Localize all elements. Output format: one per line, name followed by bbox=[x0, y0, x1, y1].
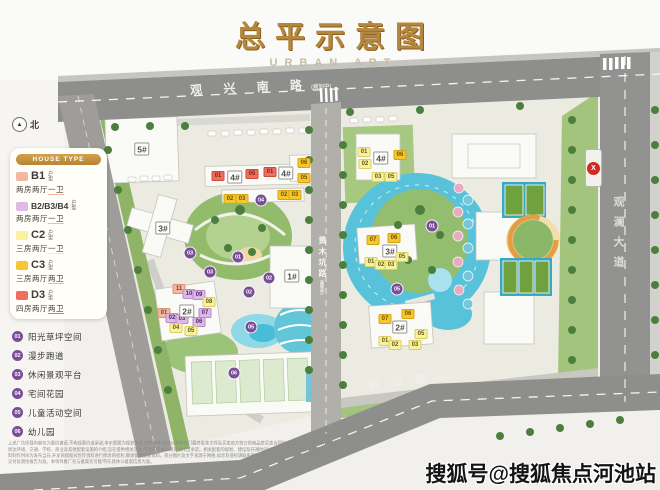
legend-item-B1: B1户型两房两厅一卫 bbox=[16, 171, 101, 195]
road-name-right: 观澜大道 bbox=[612, 196, 624, 276]
amenity-list: 01阳光草坪空间02漫步跑道03休闲景观平台04宅间花园05儿童活动空间06幼儿… bbox=[12, 331, 82, 445]
page-title: 总平示意图 bbox=[0, 12, 660, 56]
legend-code: C3 bbox=[31, 260, 45, 271]
legend-item-C2: C2户型三房两厅一卫 bbox=[16, 230, 101, 254]
legend-swatch bbox=[16, 261, 28, 270]
page-subtitle: URBAN ART bbox=[0, 57, 660, 69]
legend-suffix: 户型 bbox=[48, 231, 54, 241]
legend-items: B1户型两房两厅一卫B2/B3/B4户型两房两厅一卫C2户型三房两厅一卫C3户型… bbox=[16, 171, 101, 314]
amenity-label: 漫步跑道 bbox=[28, 350, 64, 362]
legend-header: HOUSE TYPE bbox=[16, 154, 101, 165]
north-label: 北 bbox=[30, 118, 39, 131]
amenity-number-badge: 03 bbox=[12, 369, 23, 380]
amenity-item-01: 01阳光草坪空间 bbox=[12, 331, 82, 342]
amenity-label: 宅间花园 bbox=[28, 388, 64, 400]
amenity-label: 阳光草坪空间 bbox=[28, 331, 82, 343]
road-note-middle: (规划中) bbox=[320, 280, 325, 295]
legend-swatch bbox=[16, 231, 28, 240]
north-arrow-icon: ▲ bbox=[12, 117, 27, 132]
station-icon: X bbox=[587, 162, 600, 175]
amenity-number-badge: 06 bbox=[12, 426, 23, 437]
amenity-number-badge: 04 bbox=[12, 388, 23, 399]
amenity-item-03: 03休闲景观平台 bbox=[12, 369, 82, 380]
amenity-item-06: 06幼儿园 bbox=[12, 426, 82, 437]
legend-desc: 三房两厅两卫 bbox=[16, 273, 101, 284]
legend-code: B2/B3/B4 bbox=[31, 202, 68, 211]
amenity-number-badge: 01 bbox=[12, 331, 23, 342]
transit-station-badge: X bbox=[585, 149, 602, 187]
amenity-label: 幼儿园 bbox=[28, 426, 55, 438]
amenity-item-04: 04宅间花园 bbox=[12, 388, 82, 399]
amenity-number-badge: 02 bbox=[12, 350, 23, 361]
legend-suffix: 户型 bbox=[48, 172, 54, 182]
road-label-middle: 黄木坑路(规划中) bbox=[317, 236, 328, 295]
legend-suffix: 户型 bbox=[48, 261, 54, 271]
title-block: 总平示意图 URBAN ART bbox=[0, 12, 660, 69]
site-plan-page: 总平示意图 URBAN ART ▲ 北 观 兴 南 路(规划中) 观澜大道 黄木… bbox=[0, 0, 660, 490]
amenity-item-05: 05儿童活动空间 bbox=[12, 407, 82, 418]
legend-item-C3: C3户型三房两厅两卫 bbox=[16, 260, 101, 284]
legend-desc: 四房两厅两卫 bbox=[16, 303, 101, 314]
legend-desc: 三房两厅一卫 bbox=[16, 243, 101, 254]
amenity-label: 休闲景观平台 bbox=[28, 369, 82, 381]
road-note-top: (规划中) bbox=[311, 84, 331, 91]
legend-item-B2-B3-B4: B2/B3/B4户型两房两厅一卫 bbox=[16, 201, 101, 224]
house-type-legend: HOUSE TYPE B1户型两房两厅一卫B2/B3/B4户型两房两厅一卫C2户… bbox=[10, 148, 107, 319]
legend-code: D3 bbox=[31, 290, 45, 301]
north-indicator: ▲ 北 bbox=[12, 117, 39, 132]
legend-code: B1 bbox=[31, 171, 45, 182]
legend-desc: 两房两厅一卫 bbox=[16, 184, 101, 195]
legend-code: C2 bbox=[31, 230, 45, 241]
legend-suffix: 户型 bbox=[48, 291, 54, 301]
road-label-right: 观澜大道 bbox=[610, 196, 626, 276]
amenity-number-badge: 05 bbox=[12, 407, 23, 418]
legend-swatch bbox=[16, 172, 28, 181]
amenity-label: 儿童活动空间 bbox=[28, 407, 82, 419]
legend-desc: 两房两厅一卫 bbox=[16, 213, 101, 224]
watermark: 搜狐号@搜狐焦点河池站 bbox=[426, 458, 656, 488]
amenity-item-02: 02漫步跑道 bbox=[12, 350, 82, 361]
road-name-middle: 黄木坑路 bbox=[318, 236, 327, 280]
road-note-bottom: (规划中) bbox=[432, 375, 451, 383]
legend-swatch bbox=[16, 202, 28, 211]
legend-suffix: 户型 bbox=[71, 201, 77, 211]
legend-swatch bbox=[16, 291, 28, 300]
legend-item-D3: D3户型四房两厅两卫 bbox=[16, 290, 101, 314]
